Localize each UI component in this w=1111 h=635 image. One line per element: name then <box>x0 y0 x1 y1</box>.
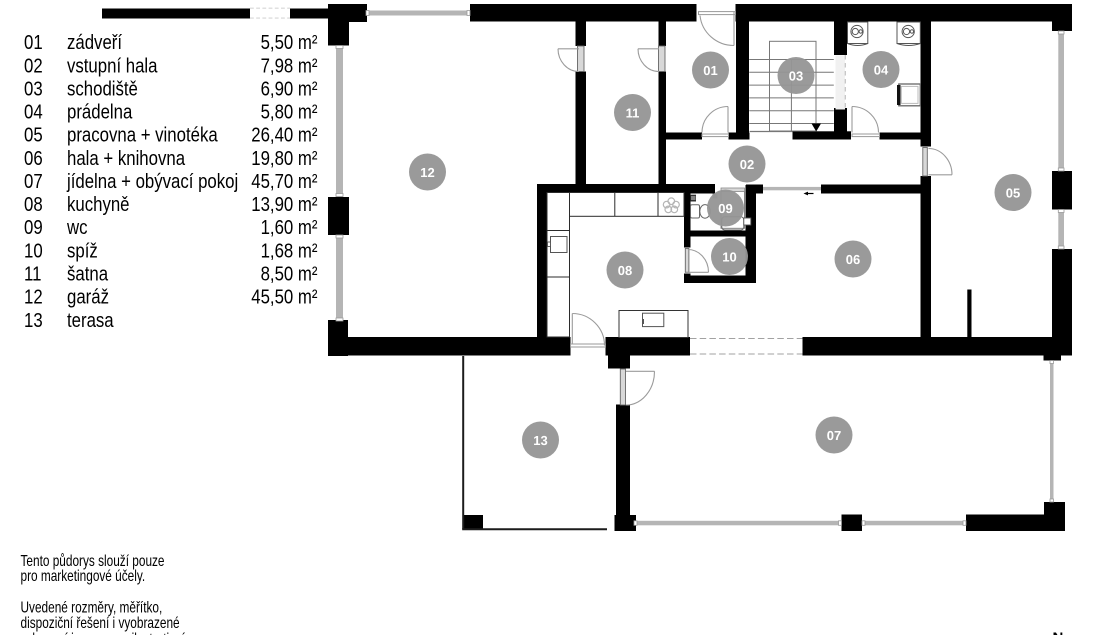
svg-text:zádveří: zádveří <box>67 31 123 54</box>
svg-text:02: 02 <box>24 54 43 77</box>
svg-text:03: 03 <box>24 77 43 100</box>
svg-text:06: 06 <box>846 252 860 267</box>
svg-text:45,50 m²: 45,50 m² <box>251 285 317 308</box>
svg-text:10: 10 <box>24 239 43 262</box>
svg-text:02: 02 <box>740 157 754 172</box>
svg-text:05: 05 <box>24 123 43 146</box>
svg-text:08: 08 <box>618 263 632 278</box>
svg-text:5,50 m²: 5,50 m² <box>261 31 318 54</box>
svg-text:jídelna + obývací pokoj: jídelna + obývací pokoj <box>66 170 238 193</box>
svg-text:45,70 m²: 45,70 m² <box>251 170 317 193</box>
svg-text:pro marketingové účely.: pro marketingové účely. <box>20 566 145 584</box>
svg-text:terasa: terasa <box>67 308 114 331</box>
svg-text:pracovna + vinotéka: pracovna + vinotéka <box>67 123 218 146</box>
svg-text:03: 03 <box>789 69 803 84</box>
svg-text:01: 01 <box>703 63 717 78</box>
svg-text:7,98 m²: 7,98 m² <box>261 54 318 77</box>
svg-text:wc: wc <box>66 216 87 239</box>
svg-text:01: 01 <box>24 31 43 54</box>
svg-text:19,80 m²: 19,80 m² <box>251 146 317 169</box>
svg-text:09: 09 <box>24 216 43 239</box>
svg-text:13: 13 <box>533 433 547 448</box>
svg-text:07: 07 <box>24 170 43 193</box>
svg-text:12: 12 <box>24 285 43 308</box>
svg-text:N: N <box>1053 629 1064 635</box>
svg-text:09: 09 <box>718 201 732 216</box>
svg-text:04: 04 <box>874 63 889 78</box>
svg-text:6,90 m²: 6,90 m² <box>261 77 318 100</box>
svg-text:12: 12 <box>420 165 434 180</box>
svg-text:08: 08 <box>24 193 43 216</box>
svg-text:1,60 m²: 1,60 m² <box>261 216 318 239</box>
svg-text:05: 05 <box>1006 186 1020 201</box>
svg-text:13: 13 <box>24 308 43 331</box>
svg-text:11: 11 <box>626 106 640 121</box>
svg-text:prádelna: prádelna <box>67 100 133 123</box>
svg-text:kuchyně: kuchyně <box>67 193 130 216</box>
svg-text:vybavení jsou pouze ilustrativ: vybavení jsou pouze ilustrativní. <box>20 629 188 635</box>
svg-text:1,68 m²: 1,68 m² <box>261 239 318 262</box>
svg-text:garáž: garáž <box>67 285 109 308</box>
svg-text:07: 07 <box>827 428 841 443</box>
svg-text:11: 11 <box>24 262 41 285</box>
svg-text:13,90 m²: 13,90 m² <box>251 193 317 216</box>
svg-text:04: 04 <box>24 100 43 123</box>
svg-text:10: 10 <box>722 250 736 265</box>
svg-text:spíž: spíž <box>67 239 98 262</box>
svg-text:8,50 m²: 8,50 m² <box>261 262 318 285</box>
svg-text:26,40 m²: 26,40 m² <box>251 123 317 146</box>
svg-text:hala + knihovna: hala + knihovna <box>67 146 186 169</box>
svg-text:schodiště: schodiště <box>67 77 138 100</box>
svg-text:šatna: šatna <box>67 262 109 285</box>
svg-text:06: 06 <box>24 146 43 169</box>
svg-text:vstupní hala: vstupní hala <box>67 54 158 77</box>
svg-text:5,80 m²: 5,80 m² <box>261 100 318 123</box>
